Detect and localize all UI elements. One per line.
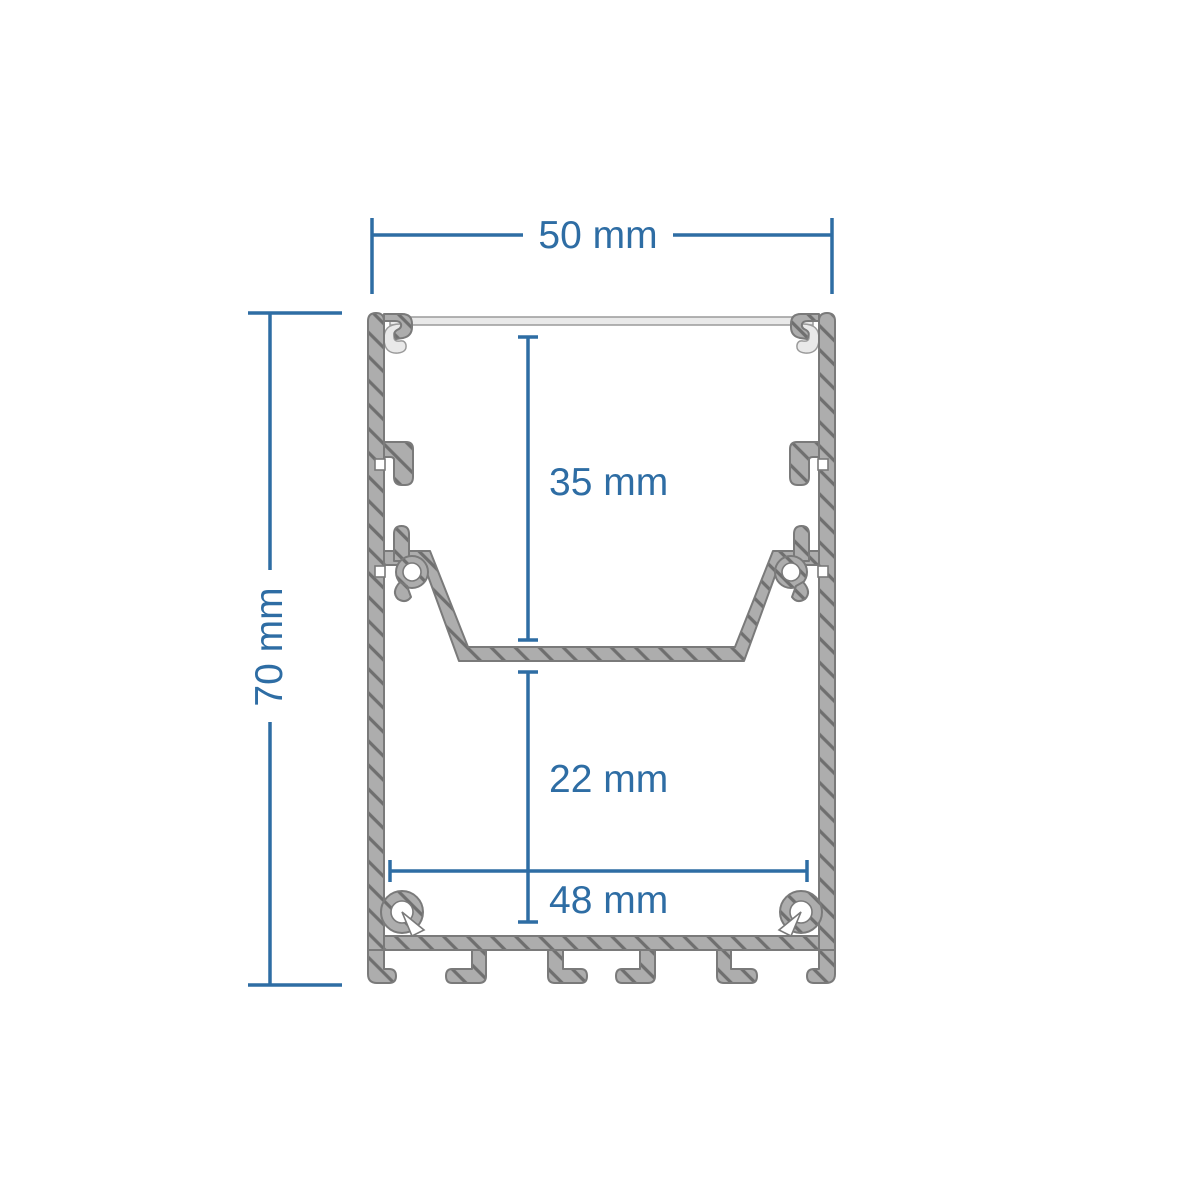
profile-drawing-canvas: 50 mm 70 mm 35 mm 22 mm 48 mm [0,0,1200,1200]
label-outer-width: 50 mm [538,214,657,257]
led-profile-cross-section-drawing: 50 mm 70 mm 35 mm 22 mm 48 mm [0,0,1200,1200]
led-trough-channel [384,551,821,661]
bottom-plate [370,936,833,950]
dimension-lines [248,218,832,985]
diffuser-cover [390,317,813,325]
label-outer-height: 70 mm [248,587,291,706]
dimension-upper-cavity [518,337,538,640]
label-lower-cavity: 22 mm [549,758,668,801]
label-inner-bottom-width: 48 mm [549,879,668,922]
dimension-lower-cavity [518,672,538,922]
label-upper-cavity: 35 mm [549,461,668,504]
